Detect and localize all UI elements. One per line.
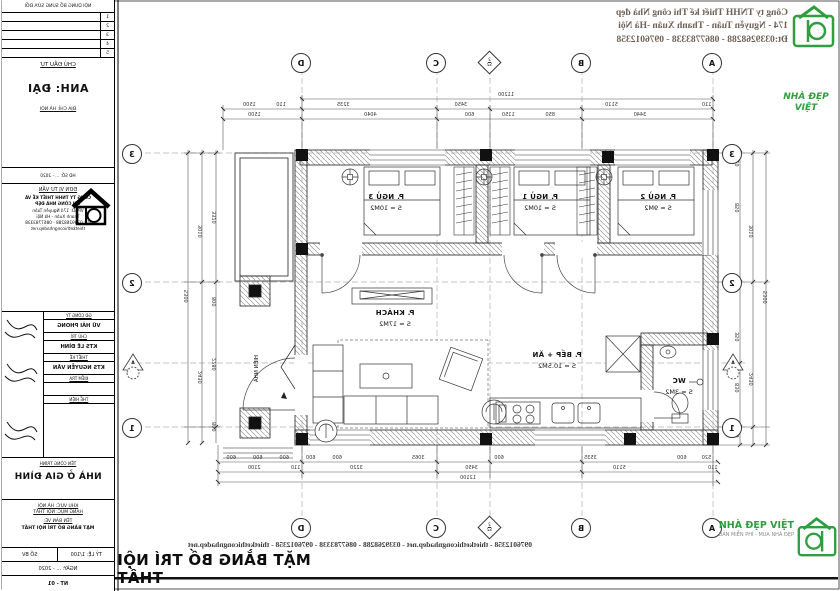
title-block: NỘI DUNG BỔ SUNG SỬA ĐỔI 1 2 3 4 5 CHỦ Đ… [2, 0, 115, 591]
revision-number: 2 [100, 22, 114, 30]
room-name: P. BẾP + ĂN [532, 351, 582, 359]
grid-bubble-col-c-top: C [426, 53, 446, 73]
room-label-bedroom3: P. NGỦ 3 S = 10M2 [344, 192, 428, 214]
dim-col-right-inner: 3320 800 2280 800 [212, 150, 222, 443]
dim-value: 800 [212, 410, 222, 443]
company-phones: Đt:0339268288 - 0867783338 - 0976012358 [528, 34, 788, 47]
signature-name [44, 404, 114, 457]
dim-value: 600 [669, 455, 696, 461]
dim-value: 600 [455, 112, 484, 118]
area-line1: KHU VỰC: HÀ NỘI [2, 504, 114, 509]
company-address: 174 - Nguyễn Tuân - Thanh Xuân -Hà Nội [528, 20, 788, 33]
grid-bubble-col-d-bottom: D [291, 518, 311, 538]
dim-row-top1: 110 5110 3450 3235 110 1500 [223, 102, 712, 108]
grid-bubble-col-b-top: B [571, 53, 591, 73]
drawing-name: MẶT BẰNG BỐ TRÍ NỘI THẤT [2, 526, 114, 531]
signature-table: GĐ CÔNG TY VŨ HẢI PHONG CHỦ TRÌ KTS LÊ Đ… [2, 312, 114, 458]
revision-row: 1 [2, 13, 114, 22]
dim-value: 600 [218, 455, 245, 461]
drawing-name-section: KHU VỰC: HÀ NỘI HẠNG MỤC: NỘI THẤT TÊN B… [2, 500, 114, 548]
dim-top-total: 11200 [300, 92, 712, 98]
signature-name: KTS NGUYỄN VĂN [44, 362, 114, 375]
drawing-label: TÊN BẢN VẼ: [2, 519, 114, 524]
project-label: TÊN CÔNG TRÌNH [2, 461, 114, 466]
dim-col-left-total: 5300 [763, 150, 773, 445]
signature-name: VŨ HẢI PHONG [44, 320, 114, 333]
dim-value: 600 [245, 455, 272, 461]
scale-value: TỶ LỆ: 1/100 [59, 548, 115, 561]
brand-footer: NHÀ ĐẸP VIỆT BẢN MIỄN PHÍ - MUA NHÀ ĐẸP [694, 520, 794, 539]
contract-line: HĐ SỐ: ... - 2020 [2, 168, 114, 184]
dim-value: 4040 [286, 112, 455, 118]
revision-number: 3 [100, 31, 114, 39]
brand-footer-caption: BẢN MIỄN PHÍ - MUA NHÀ ĐẸP [694, 532, 794, 539]
grid-bubble-col-b-bottom: B [571, 518, 591, 538]
dim-value: 600 [298, 455, 325, 461]
dim-value: 600 [324, 455, 351, 461]
revision-number: 1 [100, 13, 114, 21]
room-area: S = 10M2 [370, 204, 402, 212]
room-area: S = 3M2 [665, 388, 693, 396]
dim-value: 520 [695, 455, 718, 461]
room-name: WC [672, 377, 685, 385]
section-marker-right-label: A [125, 361, 141, 366]
dim-value: 3065 [351, 455, 486, 461]
dim-col-left-inner: 110 850 980 350 830 110 [735, 150, 745, 445]
room-label-living: P. KHÁCH S = 17M2 [350, 308, 440, 330]
revision-row: 4 [2, 40, 114, 49]
signature-role: THIẾT KẾ [44, 354, 114, 362]
dim-row-top2: 3440 850 1150 600 4040 1500 [223, 112, 712, 118]
dim-value: 110 [291, 465, 301, 471]
room-area: S = 10M2 [524, 204, 556, 212]
room-label-bedroom1: P. NGỦ 1 S = 10M2 [498, 192, 582, 214]
grid-bubble-row-3-left: 3 [722, 144, 742, 164]
section-marker-left-label: A [725, 361, 741, 366]
dim-value: 110 [708, 465, 718, 471]
section-marker-sheet: S2 [487, 63, 492, 67]
dim-row-bottom-fine: 520 600 3535 600 3065 600 600 600 600 60… [218, 455, 718, 461]
signature-name [44, 383, 114, 396]
grid-bubble-row-2-left: 2 [722, 273, 742, 293]
company-header: Công ty TNHH Thiết kế Thi công Nhà đẹp 1… [528, 7, 788, 47]
dim-value: 3010 [749, 150, 759, 313]
dim-value: 5300 [184, 150, 194, 443]
consultant-logo-icon [68, 187, 114, 229]
dim-value: 3440 [568, 112, 712, 118]
dim-value: 5110 [531, 465, 707, 471]
room-name: P. NGỦ 3 [368, 193, 404, 201]
dim-value: 110 [701, 102, 712, 108]
brand-watermark-line2: VIỆT [776, 103, 836, 114]
sheet-label: SỐ BV [2, 548, 59, 561]
grid-bubble-row-2-right: 2 [122, 273, 142, 293]
dim-col-right-total: 5300 [184, 150, 194, 443]
room-name: P. KHÁCH [375, 309, 414, 317]
dim-value: 2430 [749, 313, 759, 445]
footer-contact-strip: 0976012358 - thietkethicongnhadep.net - … [112, 540, 532, 549]
brand-watermark-line1: NHÀ ĐẸP [776, 92, 836, 103]
kitchen-fixtures [490, 398, 641, 428]
signature-scribbles [2, 312, 43, 458]
dim-value: 1150 [484, 112, 532, 118]
room-area: S = 9M2 [644, 204, 672, 212]
investor-address: ĐỊA CHỈ: HÀ NỘI [2, 107, 114, 112]
signature-name: KTS LÊ ĐÌNH [44, 341, 114, 354]
dim-value: 1500 [223, 112, 286, 118]
dim-value: 2430 [198, 312, 208, 443]
revision-row: 3 [2, 31, 114, 40]
project-name: NHÀ Ở GIA ĐÌNH [2, 472, 114, 482]
dim-bottom-total: 12100 [218, 475, 718, 481]
dim-value: 3220 [301, 465, 412, 471]
dim-value: 800 [212, 285, 222, 318]
dim-value: 3010 [198, 150, 208, 312]
signature-role: THỂ HIỆN [44, 396, 114, 404]
room-name: P. NGỦ 2 [640, 193, 676, 201]
company-logo-icon [791, 4, 836, 49]
dim-value: 5300 [763, 150, 773, 445]
area-line2: HẠNG MỤC: NỘI THẤT [2, 510, 114, 515]
investor-section: CHỦ ĐẦU TƯ ANH: ĐẠI ĐỊA CHỈ: HÀ NỘI [2, 58, 114, 168]
signature-role: KIỂM TRA [44, 375, 114, 383]
dim-value: 3320 [212, 150, 222, 285]
grid-bubble-col-a-top: A [702, 53, 722, 73]
revision-row: 2 [2, 22, 114, 31]
investor-name: ANH: ĐẠI [2, 82, 114, 95]
grid-bubble-row-1-right: 1 [122, 418, 142, 438]
veranda [223, 153, 295, 458]
date-value: NGÀY: ... - 2020 [2, 562, 114, 575]
dim-value: 850 [532, 112, 568, 118]
veranda-label: HIÊN NHÀ [253, 338, 262, 400]
brand-footer-name: NHÀ ĐẸP VIỆT [694, 520, 794, 532]
revision-number: 4 [100, 40, 114, 48]
room-label-wc: WC S = 3M2 [656, 376, 702, 398]
room-label-bedroom2: P. NGỦ 2 S = 9M2 [616, 192, 700, 214]
room-label-kitchen: P. BẾP + ĂN S = 10.5M2 [512, 350, 602, 372]
project-section: TÊN CÔNG TRÌNH NHÀ Ở GIA ĐÌNH [2, 458, 114, 500]
dim-row-bottom-main: 110 5110 3450 3220 110 2100 [218, 465, 718, 471]
dim-value: 2100 [218, 465, 291, 471]
grid-bubble-col-d-top: D [291, 53, 311, 73]
dim-value: 600 [271, 455, 298, 461]
dim-value: 600 [486, 455, 513, 461]
dim-value: 350 [735, 319, 745, 355]
dim-value: 5110 [522, 102, 702, 108]
revision-row: 5 [2, 49, 114, 58]
dim-value: 3535 [512, 455, 668, 461]
mirrored-drawing-content: Công ty TNHH Thiết kế Thi công Nhà đẹp 1… [0, 0, 840, 591]
dim-col-right-mid: 3010 2430 [198, 150, 208, 443]
dim-value: 3450 [412, 465, 531, 471]
dim-value: 3450 [400, 102, 521, 108]
signature-role: CHỦ TRÌ [44, 333, 114, 341]
grid-bubble-row-1-left: 1 [722, 418, 742, 438]
sheet-number: NT - 01 [2, 576, 114, 591]
sheet-number-row: NT - 01 [2, 576, 114, 591]
company-name: Công ty TNHH Thiết kế Thi công Nhà đẹp [528, 7, 788, 20]
room-area: S = 17M2 [379, 320, 411, 328]
dim-value: 850 [735, 174, 745, 242]
consultant-section: ĐƠN VỊ TƯ VẤN CÔNG TY TNHH THIẾT KẾ VÀ T… [2, 184, 114, 312]
dim-value: 3235 [286, 102, 400, 108]
revision-table-header: NỘI DUNG BỔ SUNG SỬA ĐỔI [2, 0, 114, 13]
grid-bubble-col-c-bottom: C [426, 518, 446, 538]
dim-value: 2280 [212, 318, 222, 411]
room-area: S = 10.5M2 [538, 362, 576, 370]
dim-value: 110 [276, 102, 287, 108]
dim-value: 1500 [223, 102, 276, 108]
floor-plan-linework [0, 0, 840, 591]
drawing-sheet: Công ty TNHH Thiết kế Thi công Nhà đẹp 1… [0, 0, 840, 591]
grid-bubble-row-3-right: 3 [122, 144, 142, 164]
sheet-title: MẶT BẰNG BỐ TRÍ NỘI THẤT [117, 551, 360, 587]
investor-label: CHỦ ĐẦU TƯ [2, 62, 114, 68]
revision-number: 5 [100, 49, 114, 57]
scale-row: TỶ LỆ: 1/100 SỐ BV [2, 548, 114, 562]
date-row: NGÀY: ... - 2020 [2, 562, 114, 576]
section-marker-sheet: S2 [487, 528, 492, 532]
dim-col-left-mid: 3010 2430 [749, 150, 759, 445]
brand-footer-logo-icon [796, 516, 838, 558]
room-name: P. NGỦ 1 [522, 193, 558, 201]
brand-watermark: NHÀ ĐẸP VIỆT [776, 92, 836, 114]
signature-role: GĐ CÔNG TY [44, 312, 114, 320]
